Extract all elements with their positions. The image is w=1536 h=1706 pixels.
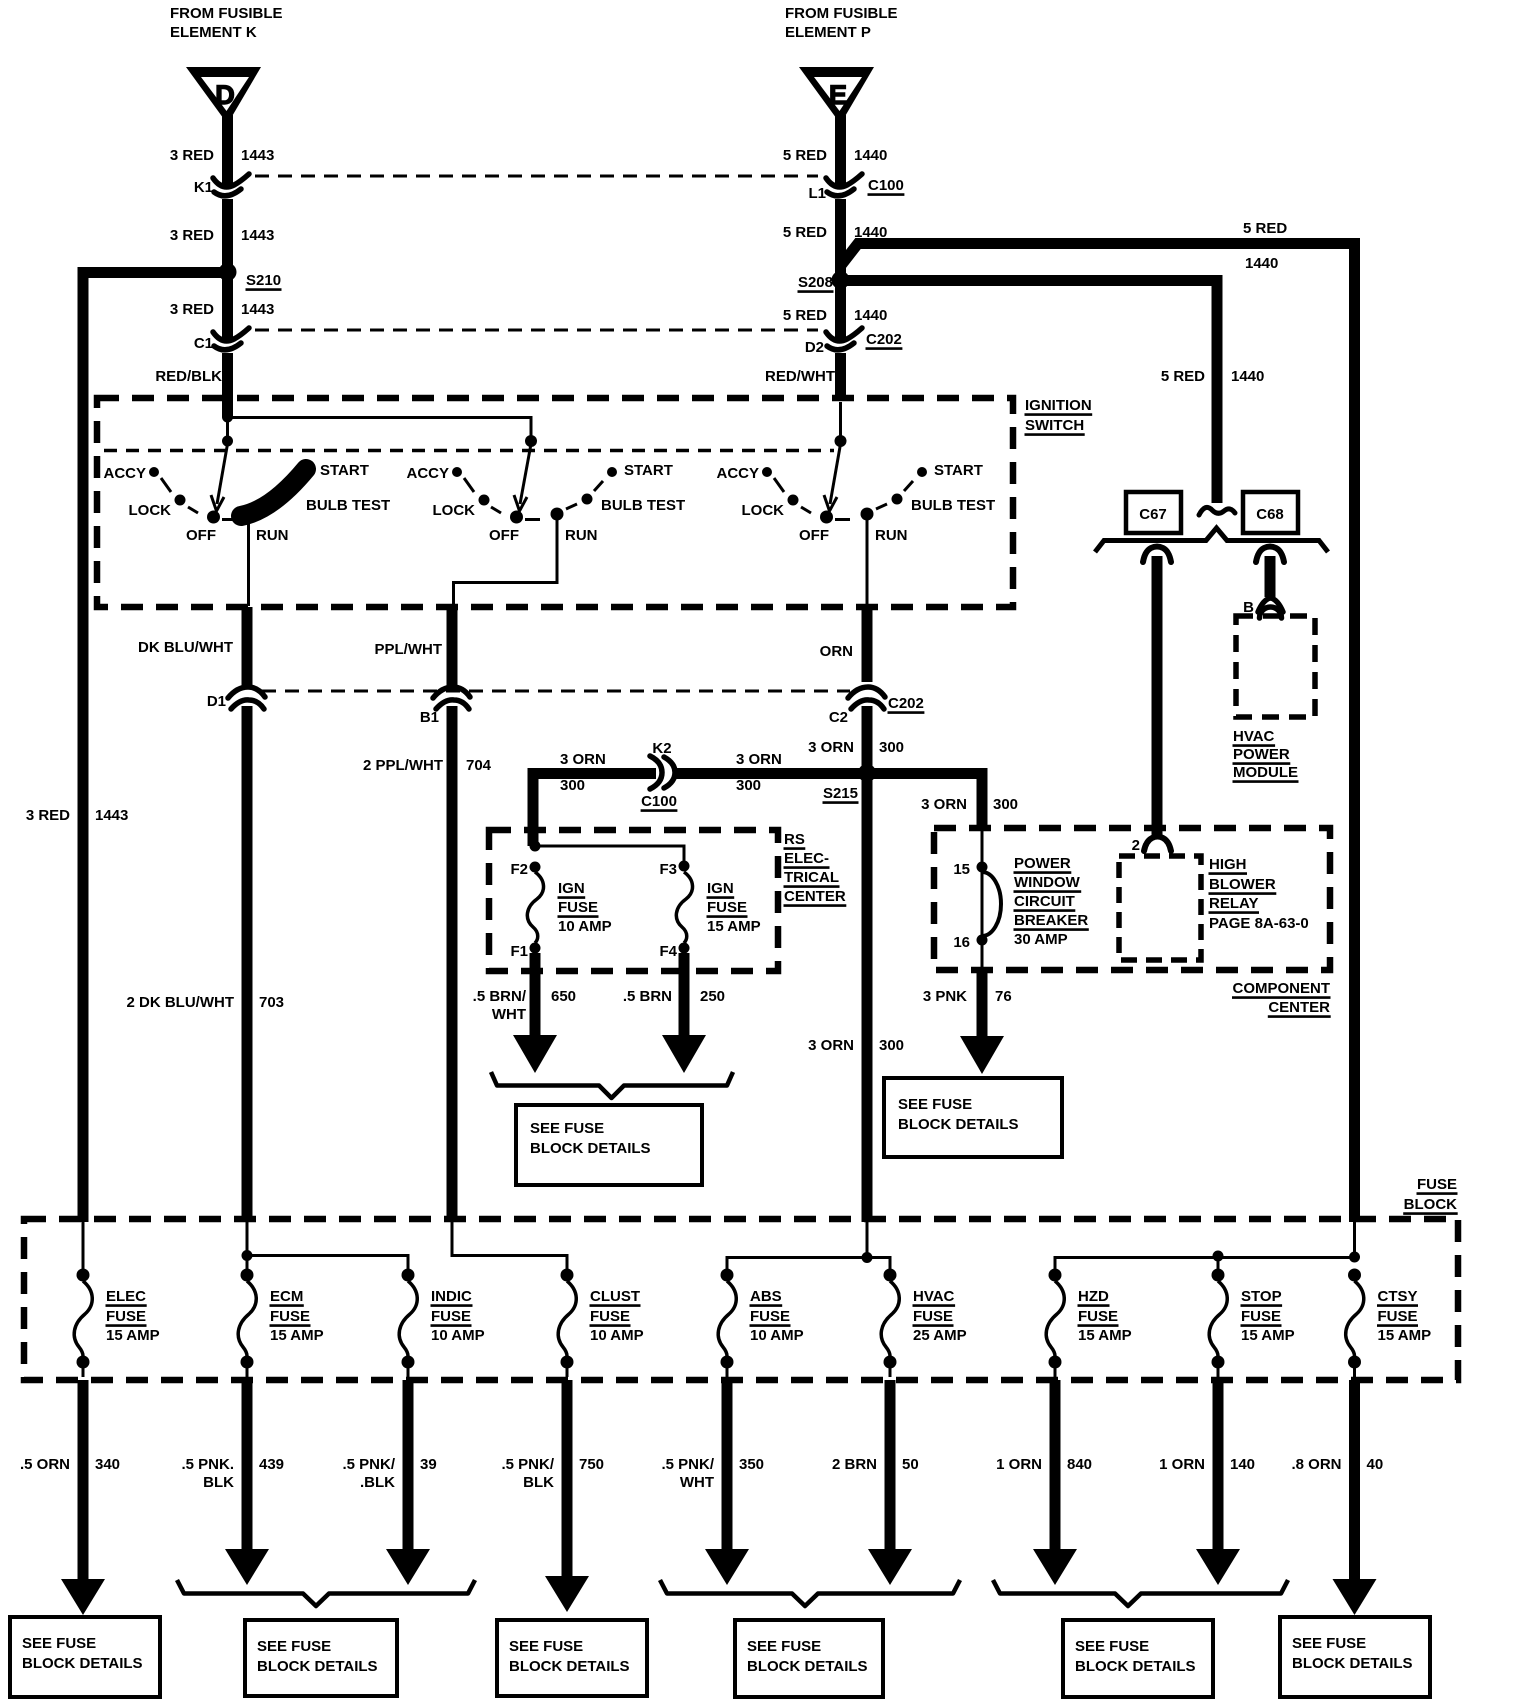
svg-text:RUN: RUN (565, 527, 598, 544)
svg-text:C2: C2 (829, 709, 848, 726)
svg-text:750: 750 (579, 1456, 604, 1473)
svg-text:.5 ORN: .5 ORN (20, 1456, 70, 1473)
svg-text:.5 PNK/: .5 PNK/ (501, 1456, 554, 1473)
svg-text:15 AMP: 15 AMP (1241, 1327, 1295, 1344)
svg-text:SWITCH: SWITCH (1025, 417, 1084, 434)
svg-text:FUSE: FUSE (913, 1308, 953, 1325)
svg-text:3 RED: 3 RED (26, 807, 70, 824)
svg-text:E: E (829, 80, 847, 110)
svg-text:L1: L1 (808, 185, 826, 202)
svg-text:BULB TEST: BULB TEST (601, 497, 685, 514)
svg-text:704: 704 (466, 757, 492, 774)
svg-text:1440: 1440 (854, 147, 887, 164)
svg-text:16: 16 (953, 934, 970, 951)
svg-text:IGN: IGN (558, 880, 585, 897)
svg-text:15 AMP: 15 AMP (1378, 1327, 1432, 1344)
svg-text:CLUST: CLUST (590, 1288, 640, 1305)
svg-text:.5 BRN: .5 BRN (623, 988, 672, 1005)
svg-text:25 AMP: 25 AMP (913, 1327, 967, 1344)
svg-text:140: 140 (1230, 1456, 1255, 1473)
svg-text:RS: RS (784, 831, 805, 848)
svg-text:3 ORN: 3 ORN (808, 739, 854, 756)
svg-text:D: D (215, 80, 235, 110)
svg-text:C1: C1 (194, 335, 213, 352)
svg-text:RELAY: RELAY (1209, 895, 1258, 912)
svg-text:BLOCK DETAILS: BLOCK DETAILS (257, 1658, 378, 1675)
svg-text:300: 300 (879, 739, 904, 756)
svg-text:START: START (624, 462, 673, 479)
svg-text:SEE FUSE: SEE FUSE (257, 1638, 331, 1655)
svg-text:340: 340 (95, 1456, 120, 1473)
svg-text:FUSE: FUSE (750, 1308, 790, 1325)
svg-text:BULB TEST: BULB TEST (306, 497, 390, 514)
svg-text:3 RED: 3 RED (170, 147, 214, 164)
svg-text:SEE FUSE: SEE FUSE (747, 1638, 821, 1655)
svg-text:BLOCK DETAILS: BLOCK DETAILS (1075, 1658, 1196, 1675)
svg-text:SEE FUSE: SEE FUSE (530, 1120, 604, 1137)
svg-text:C100: C100 (641, 793, 677, 810)
svg-text:S208: S208 (798, 274, 833, 291)
svg-text:ORN: ORN (820, 643, 853, 660)
svg-text:2 PPL/WHT: 2 PPL/WHT (363, 757, 443, 774)
svg-text:CIRCUIT: CIRCUIT (1014, 893, 1075, 910)
svg-text:1443: 1443 (241, 301, 274, 318)
svg-text:RED/WHT: RED/WHT (765, 368, 835, 385)
svg-text:D2: D2 (805, 339, 824, 356)
svg-text:10 AMP: 10 AMP (558, 918, 612, 935)
svg-text:BULB TEST: BULB TEST (911, 497, 995, 514)
svg-text:SEE FUSE: SEE FUSE (1075, 1638, 1149, 1655)
svg-text:BLOWER: BLOWER (1209, 876, 1276, 893)
svg-text:ELEC-: ELEC- (784, 850, 829, 867)
svg-text:2 DK BLU/WHT: 2 DK BLU/WHT (127, 994, 235, 1011)
svg-text:BLK: BLK (523, 1474, 554, 1491)
svg-text:15: 15 (953, 861, 970, 878)
svg-text:C67: C67 (1139, 506, 1167, 523)
svg-text:.5 PNK/: .5 PNK/ (342, 1456, 395, 1473)
svg-text:3 RED: 3 RED (170, 227, 214, 244)
svg-text:FUSE: FUSE (558, 899, 598, 916)
svg-text:3 ORN: 3 ORN (808, 1037, 854, 1054)
svg-text:FUSE: FUSE (1078, 1308, 1118, 1325)
svg-text:1440: 1440 (1231, 368, 1264, 385)
svg-text:ECM: ECM (270, 1288, 303, 1305)
svg-text:POWER: POWER (1233, 746, 1290, 763)
svg-text:SEE FUSE: SEE FUSE (22, 1635, 96, 1652)
svg-text:1440: 1440 (854, 307, 887, 324)
svg-text:HIGH: HIGH (1209, 856, 1247, 873)
svg-text:1443: 1443 (241, 147, 274, 164)
svg-text:1440: 1440 (1245, 255, 1278, 272)
svg-text:10 AMP: 10 AMP (431, 1327, 485, 1344)
svg-text:BLOCK DETAILS: BLOCK DETAILS (509, 1658, 630, 1675)
svg-text:CTSY: CTSY (1378, 1288, 1418, 1305)
svg-text:2: 2 (1132, 837, 1140, 854)
svg-text:LOCK: LOCK (129, 502, 172, 519)
svg-text:STOP: STOP (1241, 1288, 1282, 1305)
svg-text:CENTER: CENTER (784, 888, 846, 905)
svg-text:DK BLU/WHT: DK BLU/WHT (138, 639, 233, 656)
svg-text:COMPONENT: COMPONENT (1233, 980, 1331, 997)
svg-text:.5 PNK.: .5 PNK. (181, 1456, 234, 1473)
svg-text:PAGE 8A-63-0: PAGE 8A-63-0 (1209, 915, 1309, 932)
svg-text:10 AMP: 10 AMP (590, 1327, 644, 1344)
svg-text:3 ORN: 3 ORN (921, 796, 967, 813)
svg-text:1 ORN: 1 ORN (996, 1456, 1042, 1473)
svg-text:SEE FUSE: SEE FUSE (509, 1638, 583, 1655)
svg-text:2 BRN: 2 BRN (832, 1456, 877, 1473)
svg-text:3 ORN: 3 ORN (736, 751, 782, 768)
svg-text:15 AMP: 15 AMP (270, 1327, 324, 1344)
svg-text:BLOCK DETAILS: BLOCK DETAILS (898, 1116, 1019, 1133)
svg-text:MODULE: MODULE (1233, 764, 1298, 781)
svg-text:300: 300 (993, 796, 1018, 813)
svg-text:.BLK: .BLK (360, 1474, 395, 1491)
svg-text:WHT: WHT (680, 1474, 714, 1491)
svg-text:703: 703 (259, 994, 284, 1011)
svg-text:650: 650 (551, 988, 576, 1005)
svg-text:WINDOW: WINDOW (1014, 874, 1081, 891)
svg-text:3 PNK: 3 PNK (923, 988, 967, 1005)
svg-text:15 AMP: 15 AMP (707, 918, 761, 935)
svg-text:5 RED: 5 RED (1161, 368, 1205, 385)
svg-text:15 AMP: 15 AMP (1078, 1327, 1132, 1344)
svg-text:ELEC: ELEC (106, 1288, 146, 1305)
svg-text:LOCK: LOCK (433, 502, 476, 519)
svg-text:350: 350 (739, 1456, 764, 1473)
svg-text:B1: B1 (420, 709, 439, 726)
svg-text:BLOCK: BLOCK (1404, 1196, 1457, 1213)
svg-text:FUSE: FUSE (270, 1308, 310, 1325)
svg-text:RED/BLK: RED/BLK (155, 368, 222, 385)
svg-text:76: 76 (995, 988, 1012, 1005)
svg-text:.5 PNK/: .5 PNK/ (661, 1456, 714, 1473)
svg-text:F3: F3 (659, 861, 677, 878)
svg-text:5 RED: 5 RED (783, 307, 827, 324)
svg-text:BLOCK DETAILS: BLOCK DETAILS (22, 1655, 143, 1672)
svg-text:D1: D1 (207, 693, 226, 710)
svg-text:15 AMP: 15 AMP (106, 1327, 160, 1344)
svg-text:FROM FUSIBLE: FROM FUSIBLE (170, 5, 283, 22)
svg-text:BREAKER: BREAKER (1014, 912, 1088, 929)
svg-text:RUN: RUN (256, 527, 289, 544)
svg-text:30 AMP: 30 AMP (1014, 931, 1068, 948)
svg-text:840: 840 (1067, 1456, 1092, 1473)
svg-text:S210: S210 (246, 272, 281, 289)
svg-text:ABS: ABS (750, 1288, 782, 1305)
svg-text:250: 250 (700, 988, 725, 1005)
svg-text:3 ORN: 3 ORN (560, 751, 606, 768)
svg-text:ACCY: ACCY (716, 465, 759, 482)
svg-text:300: 300 (879, 1037, 904, 1054)
svg-text:INDIC: INDIC (431, 1288, 472, 1305)
svg-text:START: START (320, 462, 369, 479)
svg-text:300: 300 (736, 777, 761, 794)
svg-text:5 RED: 5 RED (783, 224, 827, 241)
svg-text:FUSE: FUSE (106, 1308, 146, 1325)
svg-text:K2: K2 (652, 740, 671, 757)
svg-text:K1: K1 (194, 179, 213, 196)
svg-text:ACCY: ACCY (406, 465, 449, 482)
svg-text:1443: 1443 (95, 807, 128, 824)
svg-text:OFF: OFF (489, 527, 519, 544)
svg-text:SEE FUSE: SEE FUSE (898, 1096, 972, 1113)
svg-text:.5 BRN/: .5 BRN/ (473, 988, 527, 1005)
svg-text:ACCY: ACCY (103, 465, 146, 482)
svg-text:.8 ORN: .8 ORN (1291, 1456, 1341, 1473)
svg-text:5 RED: 5 RED (783, 147, 827, 164)
svg-text:F2: F2 (510, 861, 528, 878)
svg-text:POWER: POWER (1014, 855, 1071, 872)
svg-text:HVAC: HVAC (1233, 728, 1275, 745)
svg-text:SEE FUSE: SEE FUSE (1292, 1635, 1366, 1652)
svg-text:C68: C68 (1256, 506, 1284, 523)
svg-text:3 RED: 3 RED (170, 301, 214, 318)
svg-text:BLOCK DETAILS: BLOCK DETAILS (530, 1140, 651, 1157)
svg-text:1 ORN: 1 ORN (1159, 1456, 1205, 1473)
svg-text:439: 439 (259, 1456, 284, 1473)
svg-text:FUSE: FUSE (1378, 1308, 1418, 1325)
svg-text:FUSE: FUSE (1241, 1308, 1281, 1325)
svg-text:C202: C202 (888, 695, 924, 712)
svg-text:F1: F1 (510, 943, 528, 960)
svg-text:BLOCK DETAILS: BLOCK DETAILS (1292, 1655, 1413, 1672)
svg-text:F4: F4 (659, 943, 677, 960)
svg-text:C100: C100 (868, 177, 904, 194)
svg-text:C202: C202 (866, 331, 902, 348)
svg-text:50: 50 (902, 1456, 919, 1473)
svg-text:5 RED: 5 RED (1243, 220, 1287, 237)
svg-text:OFF: OFF (186, 527, 216, 544)
svg-text:PPL/WHT: PPL/WHT (375, 641, 443, 658)
svg-text:FUSE: FUSE (707, 899, 747, 916)
svg-text:START: START (934, 462, 983, 479)
svg-text:FUSE: FUSE (431, 1308, 471, 1325)
svg-text:S215: S215 (823, 785, 858, 802)
svg-text:IGN: IGN (707, 880, 734, 897)
svg-text:FUSE: FUSE (590, 1308, 630, 1325)
svg-text:BLK: BLK (203, 1474, 234, 1491)
svg-text:HVAC: HVAC (913, 1288, 955, 1305)
svg-text:RUN: RUN (875, 527, 908, 544)
svg-text:LOCK: LOCK (742, 502, 785, 519)
svg-text:10 AMP: 10 AMP (750, 1327, 804, 1344)
svg-text:TRICAL: TRICAL (784, 869, 839, 886)
svg-text:OFF: OFF (799, 527, 829, 544)
svg-text:FUSE: FUSE (1417, 1176, 1457, 1193)
svg-text:ELEMENT K: ELEMENT K (170, 24, 257, 41)
svg-text:WHT: WHT (492, 1006, 526, 1023)
svg-text:FROM FUSIBLE: FROM FUSIBLE (785, 5, 898, 22)
svg-text:40: 40 (1367, 1456, 1384, 1473)
svg-text:HZD: HZD (1078, 1288, 1109, 1305)
svg-text:IGNITION: IGNITION (1025, 397, 1092, 414)
svg-text:39: 39 (420, 1456, 437, 1473)
svg-text:1443: 1443 (241, 227, 274, 244)
svg-text:BLOCK DETAILS: BLOCK DETAILS (747, 1658, 868, 1675)
svg-text:CENTER: CENTER (1268, 999, 1330, 1016)
svg-text:300: 300 (560, 777, 585, 794)
svg-text:ELEMENT P: ELEMENT P (785, 24, 871, 41)
